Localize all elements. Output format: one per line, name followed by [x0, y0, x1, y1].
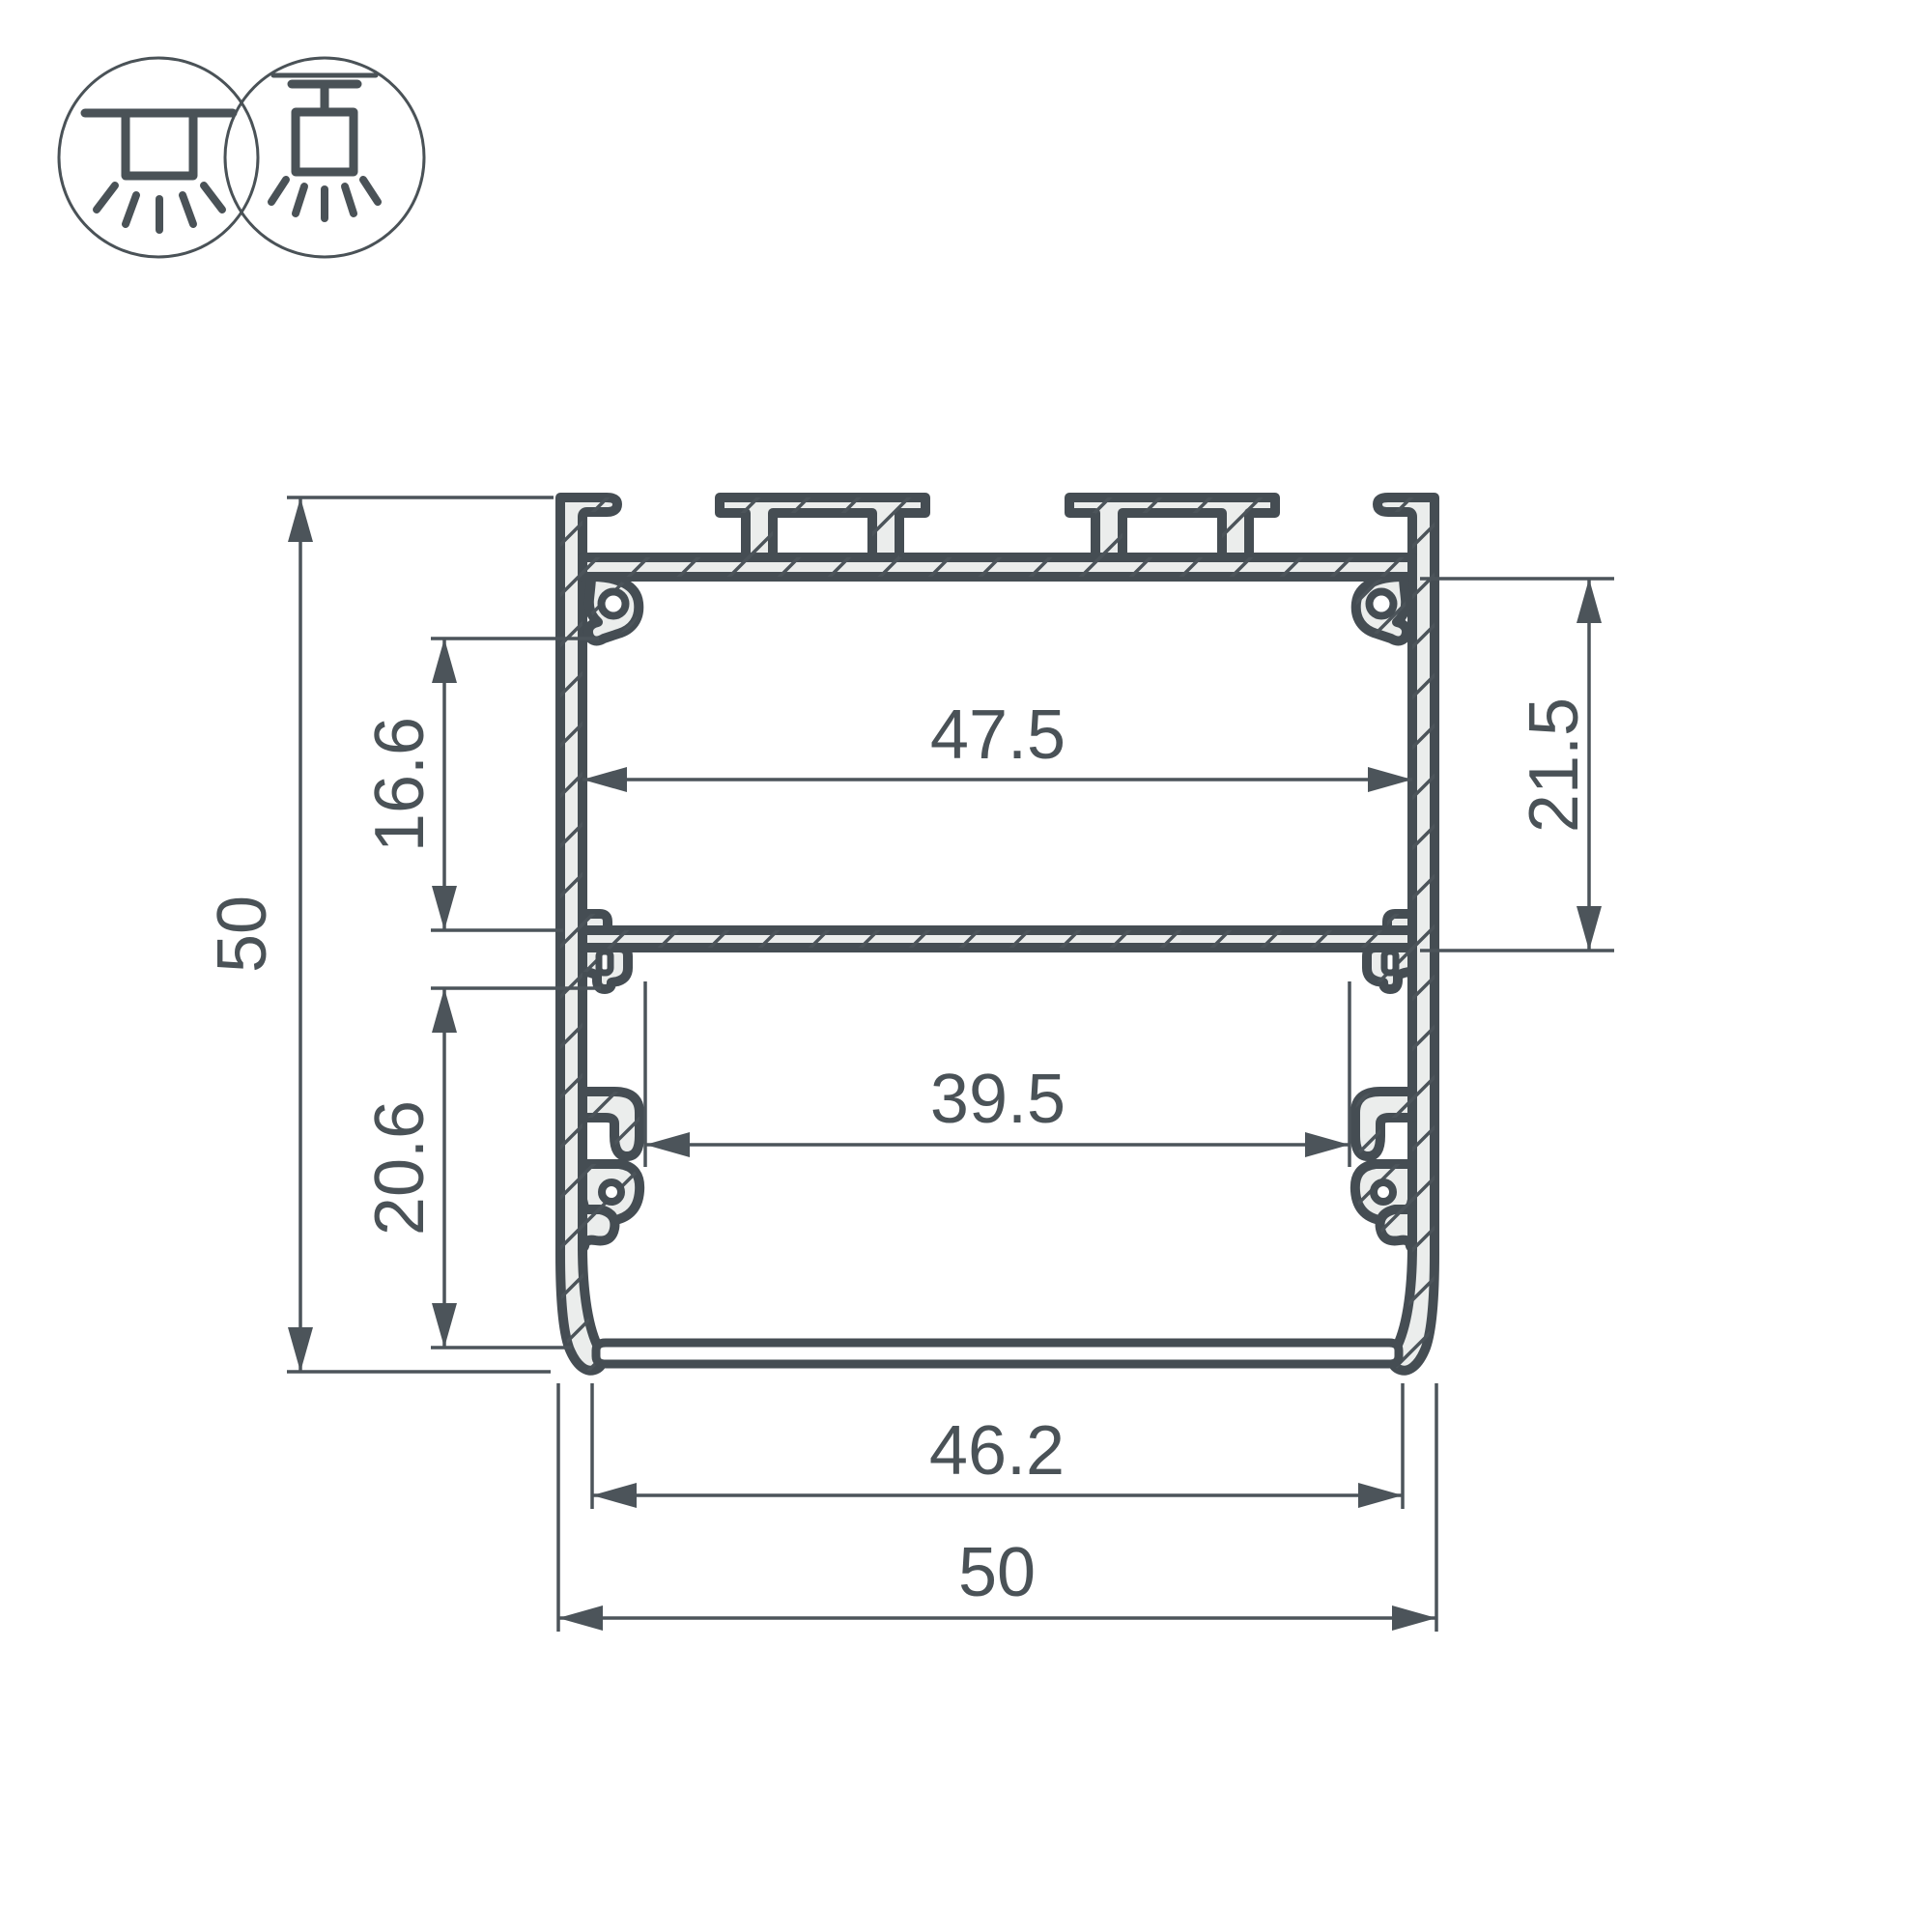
arrow-down-icon — [288, 1327, 313, 1372]
arrow-down-icon — [432, 886, 457, 930]
dim-label-lower-cavity-height: 20.6 — [361, 1100, 439, 1236]
light-rays-icon — [271, 180, 378, 218]
dim-label-upper-cavity-height: 16.6 — [361, 717, 439, 852]
diffuser-plate — [596, 1343, 1399, 1364]
dimension-lower-cavity-width: 39.5 — [645, 981, 1350, 1167]
arrow-up-icon — [432, 639, 457, 683]
dimension-right-cavity-depth: 21.5 — [1420, 579, 1614, 951]
dim-label-lower-cavity-width: 39.5 — [930, 1061, 1065, 1138]
dimension-base-width: 46.2 — [592, 1383, 1403, 1509]
arrow-right-icon — [1358, 1483, 1403, 1508]
light-rays-icon — [97, 185, 222, 230]
arrow-up-icon — [1577, 579, 1602, 623]
arrow-up-icon — [432, 988, 457, 1033]
mounting-icons — [59, 58, 424, 257]
arrow-down-icon — [1577, 906, 1602, 951]
arrow-right-icon — [1368, 767, 1412, 792]
technical-drawing-page: 50 16.6 20.6 47.5 — [0, 0, 1932, 1932]
profile-dimension-drawing: 50 16.6 20.6 47.5 — [0, 0, 1932, 1932]
dimensions: 50 16.6 20.6 47.5 — [204, 497, 1614, 1632]
arrow-left-icon — [582, 767, 627, 792]
arrow-left-icon — [592, 1483, 637, 1508]
arrow-right-icon — [1305, 1132, 1350, 1157]
surface-mount-light-icon — [59, 58, 258, 257]
dim-label-overall-height: 50 — [204, 895, 281, 973]
arrow-up-icon — [288, 497, 313, 542]
dim-label-overall-width: 50 — [958, 1534, 1036, 1611]
pendant-mount-light-icon — [225, 58, 424, 257]
arrow-down-icon — [432, 1303, 457, 1348]
dimension-overall-height: 50 — [204, 497, 554, 1372]
arrow-left-icon — [558, 1605, 603, 1631]
dim-label-base-width: 46.2 — [929, 1412, 1065, 1490]
dim-label-upper-cavity-width: 47.5 — [930, 696, 1065, 774]
dimension-upper-cavity-width: 47.5 — [582, 696, 1412, 792]
arrow-right-icon — [1392, 1605, 1436, 1631]
dim-label-right-cavity-depth: 21.5 — [1516, 697, 1593, 833]
arrow-left-icon — [645, 1132, 690, 1157]
